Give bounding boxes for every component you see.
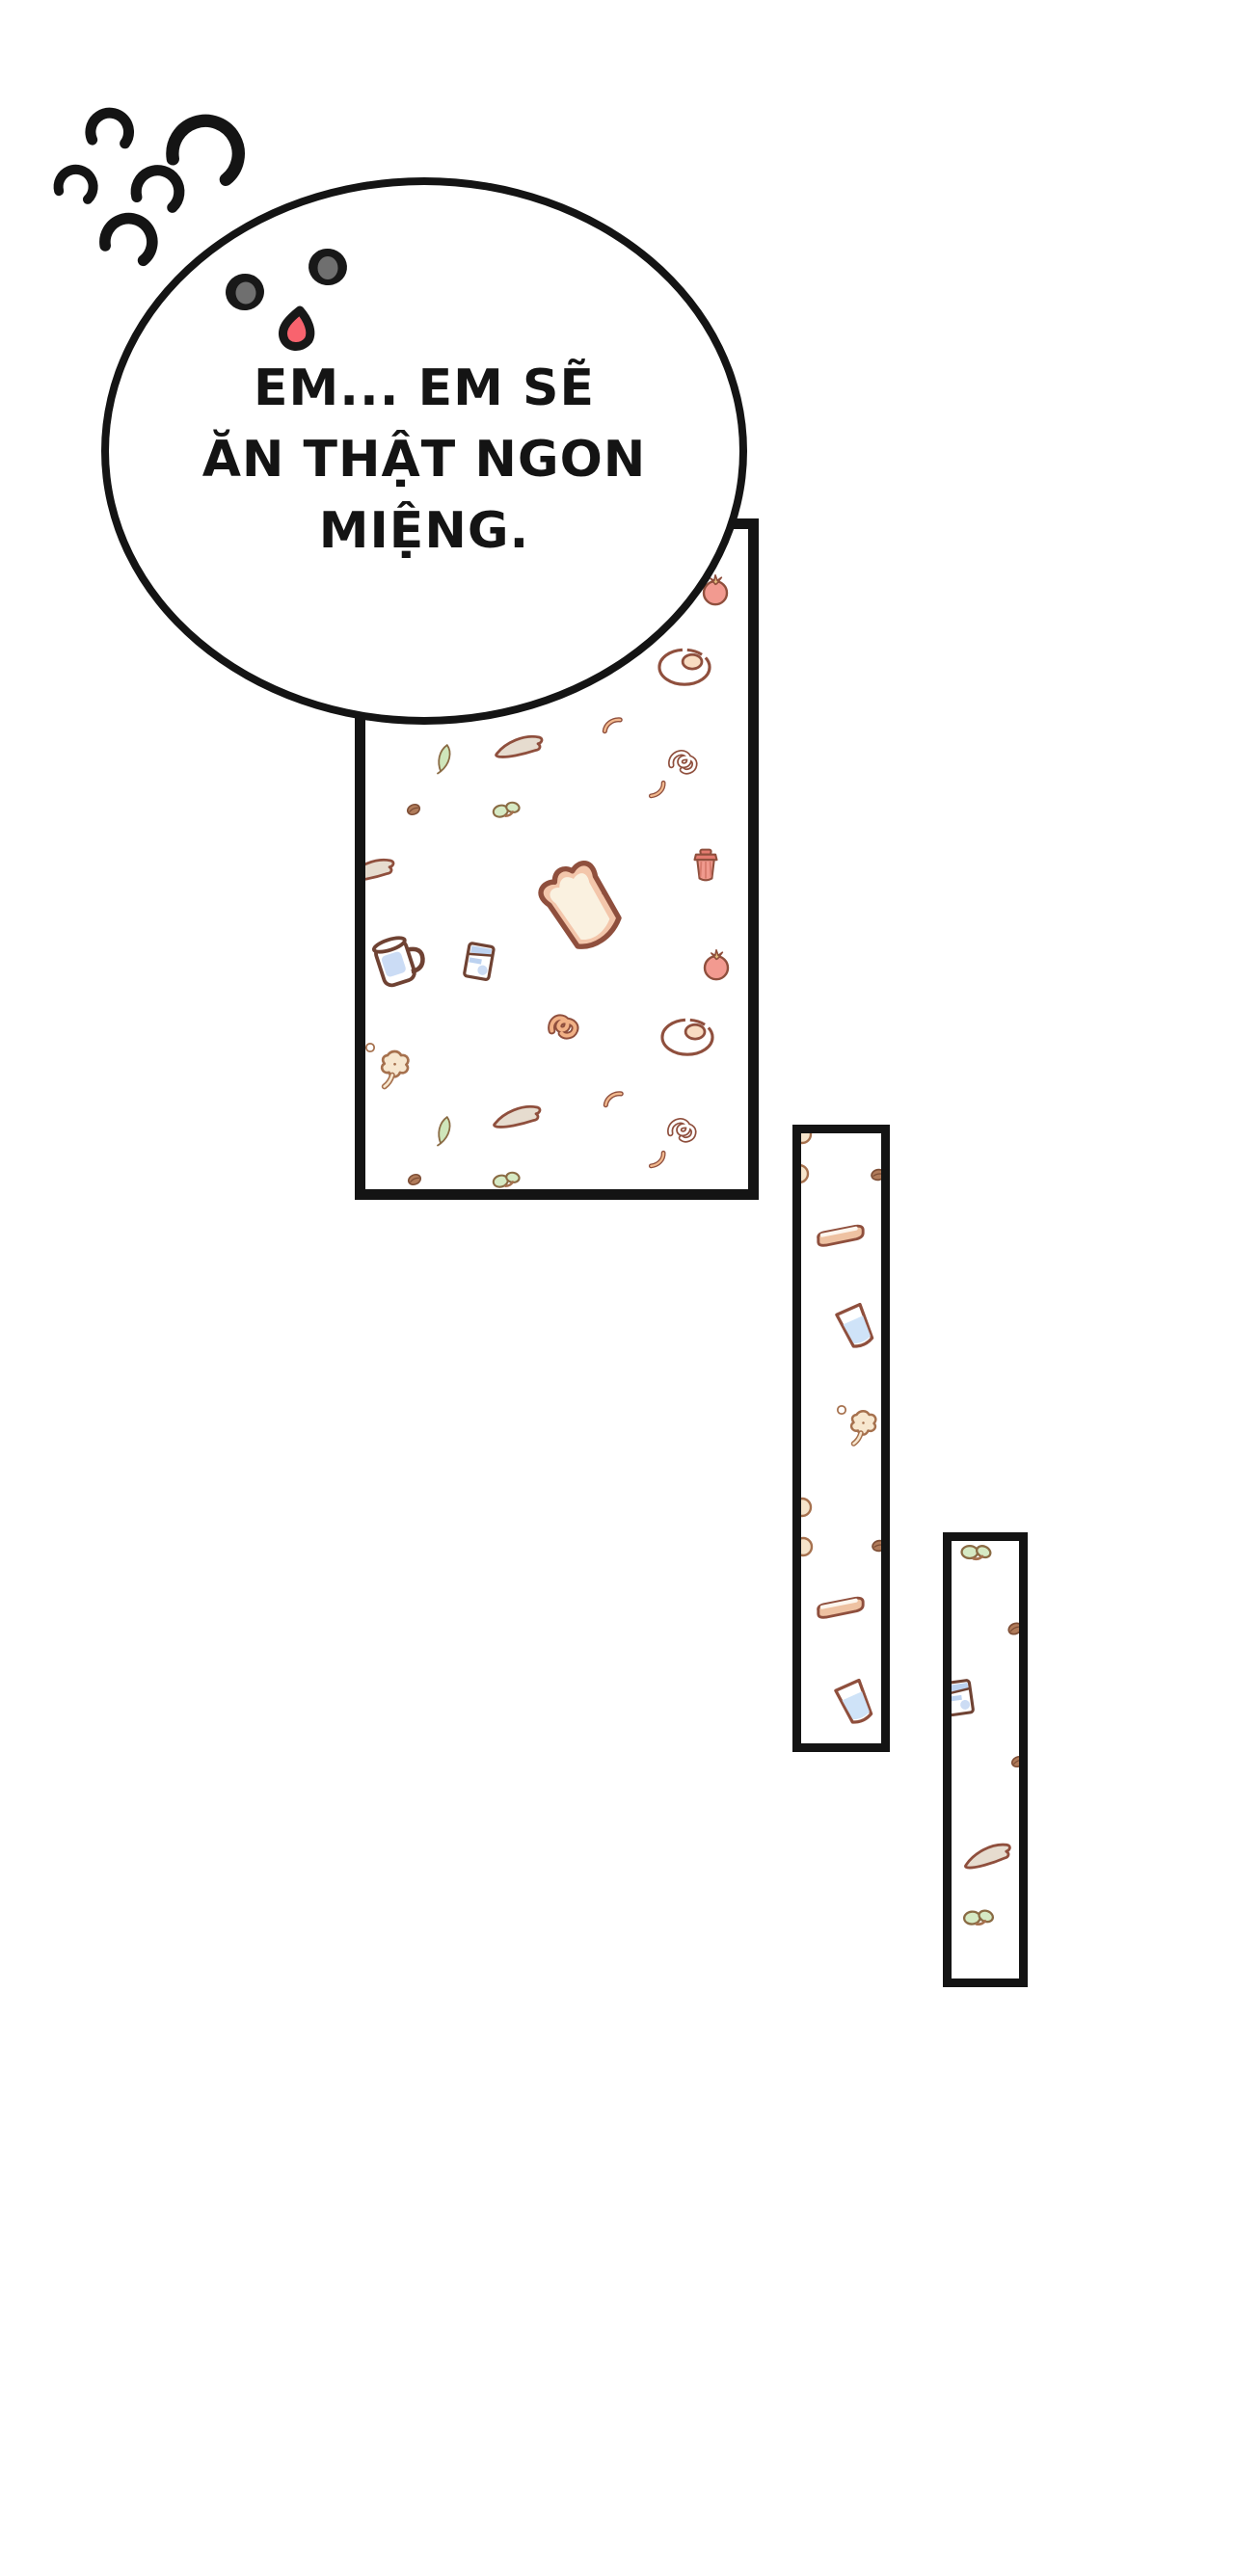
panel-tall-narrow-pattern: [801, 1133, 881, 1743]
ham-icon: [813, 1581, 869, 1637]
fried-egg-icon: [657, 1006, 717, 1066]
milk-carton-icon: [952, 1660, 997, 1735]
pretzel-icon: [539, 999, 593, 1053]
dot-cream-icon: [801, 1493, 817, 1522]
leaf-icon: [422, 1109, 465, 1152]
milk-carton-icon: [448, 930, 510, 992]
coffee-bean-icon: [402, 1167, 427, 1189]
coffee-bean-icon: [862, 1158, 881, 1191]
pudding-cup-icon: [684, 845, 728, 890]
comic-page: EM... EM SẼ ĂN THẬT NGON MIỆNG.: [0, 0, 1234, 2576]
open-mouth-icon: [282, 310, 309, 346]
bacon-icon: [959, 1826, 1018, 1885]
sprout-icon: [487, 1164, 527, 1189]
flower-icon: [839, 1402, 881, 1450]
dialogue-line-3: MIỆNG.: [101, 495, 747, 567]
sprout-icon: [952, 1541, 1003, 1584]
fried-egg-icon: [655, 636, 714, 696]
dialogue-line-1: EM... EM SẼ: [101, 353, 747, 424]
bacon-icon: [365, 842, 398, 896]
bacon-icon: [491, 1089, 545, 1143]
ham-icon: [813, 1209, 869, 1265]
crescent-icon: [595, 1080, 632, 1118]
right-eye-icon: [307, 246, 350, 287]
coffee-bean-icon: [863, 1529, 881, 1562]
left-eye-icon: [224, 271, 267, 312]
flower-icon: [368, 1042, 420, 1094]
coffee-bean-icon: [1006, 1749, 1019, 1774]
panel-small-narrow: [943, 1532, 1028, 1987]
dialogue-line-2: ĂN THẬT NGON: [101, 424, 747, 495]
tomato-icon: [697, 945, 736, 984]
dialogue-text: EM... EM SẼ ĂN THẬT NGON MIỆNG.: [101, 353, 747, 567]
sprout-icon: [952, 1897, 1004, 1948]
mug-icon: [365, 924, 434, 997]
dot-cream-icon: [801, 1532, 818, 1561]
panel-tall-narrow: [792, 1125, 890, 1752]
leaf-icon: [422, 737, 465, 780]
sprout-icon: [487, 794, 527, 835]
panel-small-narrow-pattern: [952, 1541, 1019, 1978]
dot-cream-icon: [801, 1133, 817, 1149]
glass-icon: [823, 1671, 881, 1735]
coffee-bean-icon: [1002, 1615, 1019, 1642]
bread-icon: [527, 854, 631, 958]
crescent-icon: [594, 706, 631, 744]
bacon-icon: [493, 719, 547, 773]
dot-cream-icon: [801, 1159, 814, 1188]
glass-icon: [824, 1295, 881, 1359]
coffee-bean-icon: [401, 797, 426, 822]
